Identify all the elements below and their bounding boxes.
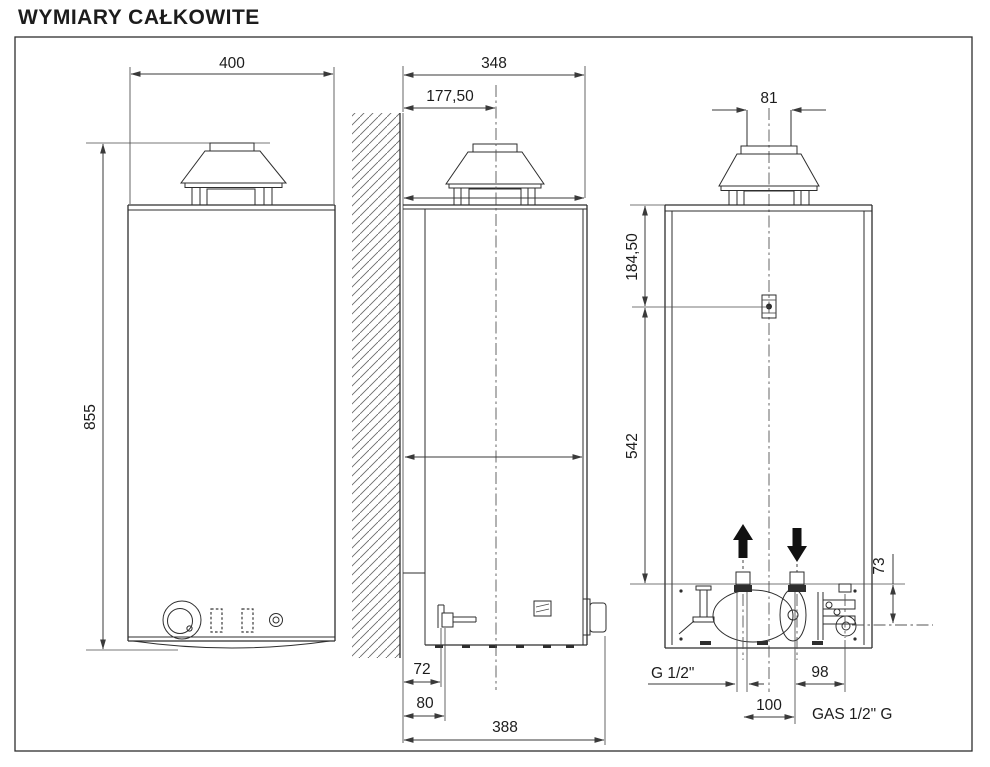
dim-front-width-label: 400 — [219, 55, 245, 72]
dim-bracket-to-connections: 542 — [624, 308, 905, 584]
dim-flue-axis-offset: 177,50 — [404, 88, 495, 108]
bottom-skirt — [133, 641, 330, 648]
water-valve-body — [713, 589, 806, 642]
dim-gas-spacing-label: 98 — [811, 664, 828, 681]
page-title: WYMIARY CAŁKOWITE — [18, 6, 260, 29]
valve-assembly — [679, 584, 933, 642]
rear-view: 81 — [624, 90, 933, 724]
dimension-drawing-page: WYMIARY CAŁKOWITE 400 855 — [0, 0, 990, 767]
dim-overall-depth: 388 — [404, 636, 605, 745]
rating-label — [534, 601, 551, 616]
flue-cowl-front — [181, 143, 286, 205]
indicator-window — [270, 614, 283, 627]
flow-arrows — [733, 524, 807, 572]
dim-overall-depth-label: 388 — [492, 719, 518, 736]
dim-connections-height-label: 73 — [871, 557, 888, 574]
dim-water-spacing: 100 — [744, 697, 794, 717]
dim-side-depth: 348 — [403, 55, 585, 198]
casing-rear — [665, 205, 872, 648]
dim-drain-offset-label: 72 — [413, 661, 430, 678]
dim-water-spacing-label: 100 — [756, 697, 782, 714]
hot-water-down-arrow — [787, 528, 807, 562]
support-bracket — [679, 586, 714, 634]
technical-drawing: WYMIARY CAŁKOWITE 400 855 — [0, 0, 990, 767]
dim-flue-axis-offset-label: 177,50 — [426, 88, 474, 105]
wall-section — [352, 113, 403, 658]
cold-water-up-arrow — [733, 524, 753, 558]
mounting-bracket-point — [762, 295, 776, 318]
dim-connections-height: 73 — [871, 554, 893, 623]
hidden-opening-left — [211, 609, 222, 632]
dim-bracket-to-connections-label: 542 — [624, 433, 641, 459]
dim-front-height-label: 855 — [82, 404, 99, 430]
drain-pipe — [438, 605, 476, 628]
connection-extension-lines — [737, 592, 845, 724]
casing-side — [403, 205, 587, 648]
casing-front — [128, 205, 335, 648]
dim-flue-diameter-label: 81 — [760, 90, 777, 107]
dim-top-to-bracket: 184,50 — [624, 205, 770, 307]
dim-front-height: 855 — [82, 143, 270, 650]
dim-front-width: 400 — [130, 55, 334, 204]
side-view: 348 177,50 — [403, 55, 606, 745]
hidden-opening-right — [242, 609, 253, 632]
gas-valve-body — [818, 584, 856, 640]
gas-connection-label: GAS 1/2" G — [812, 706, 892, 723]
dim-side-depth-label: 348 — [481, 55, 507, 72]
flue-cowl-side — [446, 144, 544, 205]
dim-flue-diameter: 81 — [712, 90, 826, 110]
control-panel — [163, 601, 283, 639]
front-view: 400 855 — [82, 55, 335, 650]
dim-top-to-bracket-label: 184,50 — [624, 233, 641, 281]
water-connection-label: G 1/2" — [651, 665, 694, 682]
dim-pipe-offset-label: 80 — [416, 695, 434, 712]
dim-gas-spacing: 98 — [796, 664, 844, 684]
wall-hatching — [352, 113, 400, 658]
